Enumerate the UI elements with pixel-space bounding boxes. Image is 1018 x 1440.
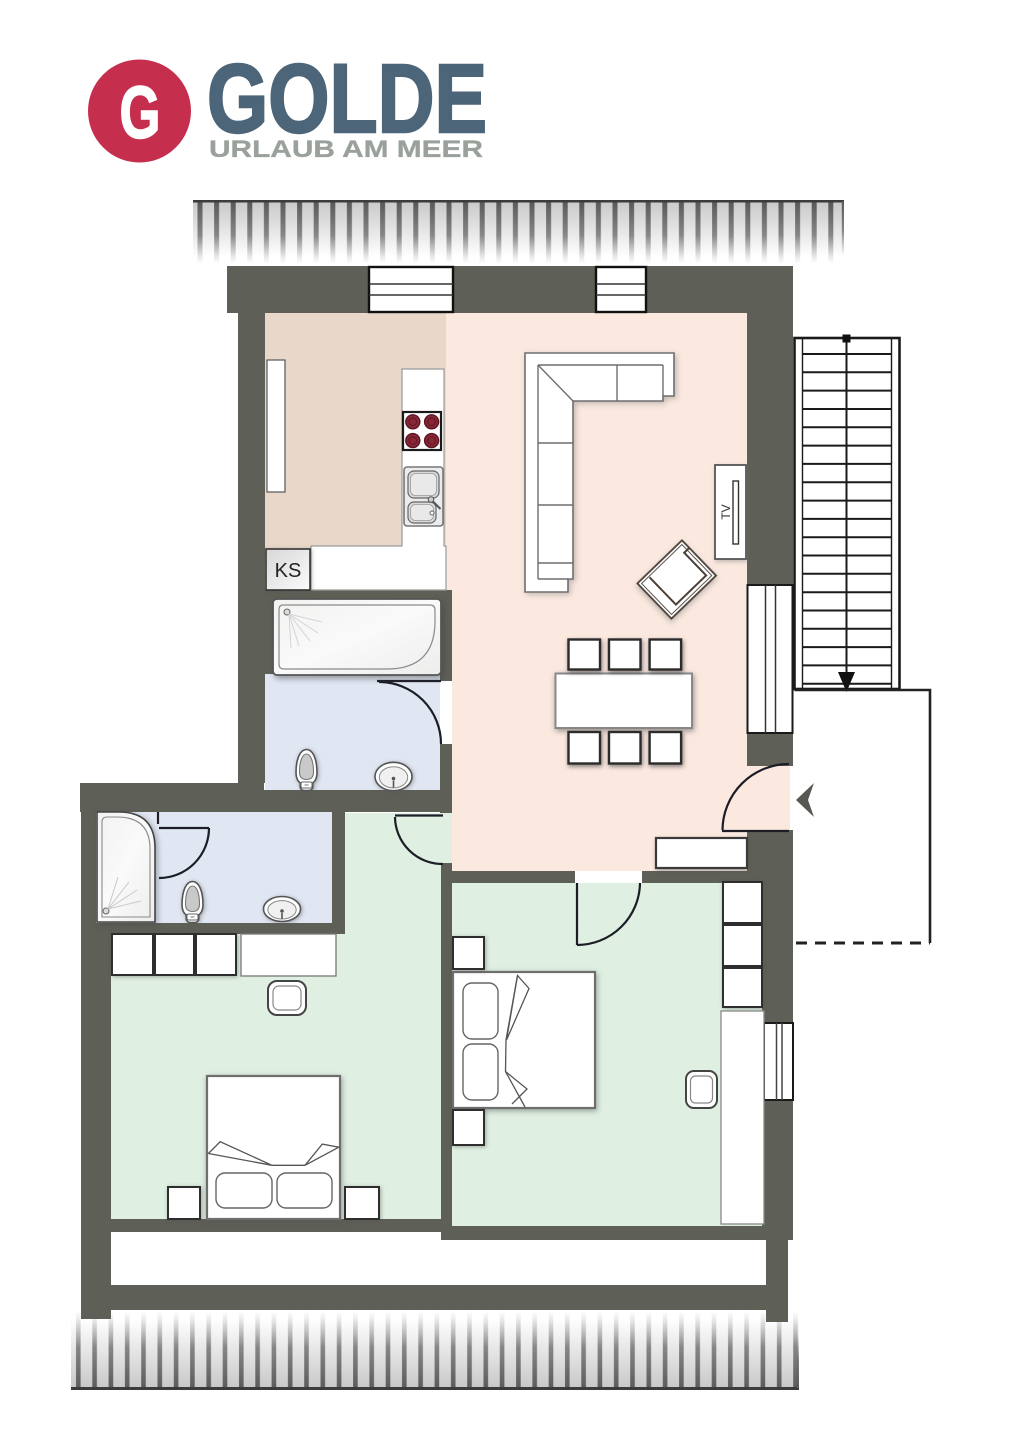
svg-text:URLAUB AM MEER: URLAUB AM MEER (209, 136, 483, 163)
svg-text:G: G (120, 71, 161, 154)
svg-text:KS: KS (275, 560, 302, 582)
svg-text:TV: TV (719, 504, 733, 519)
